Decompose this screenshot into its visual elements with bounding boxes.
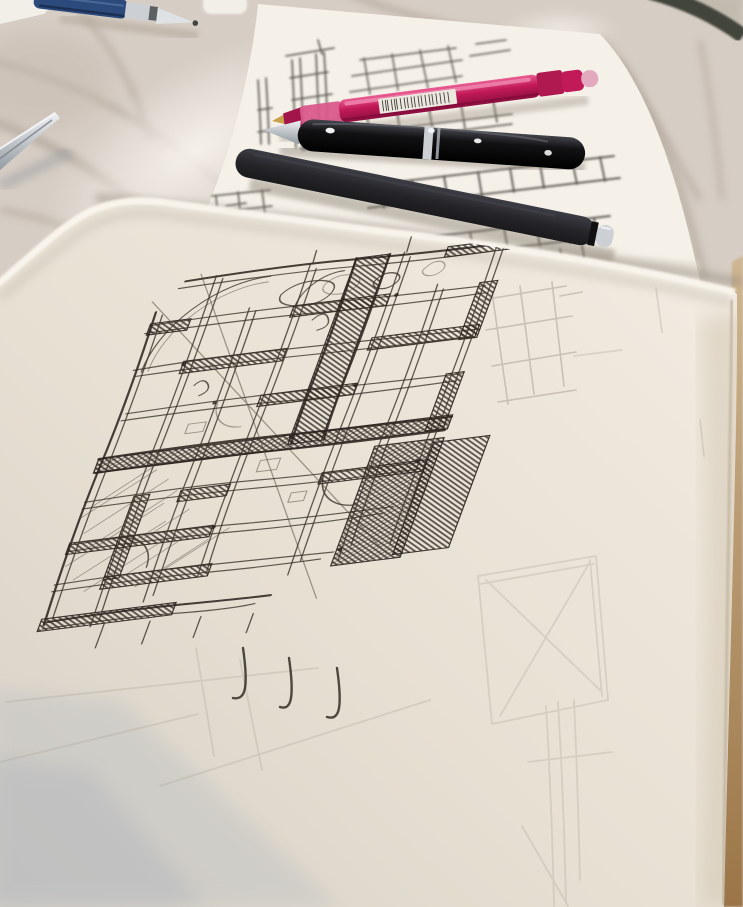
foreground-page [0, 201, 743, 907]
photo-of-sketches [0, 0, 743, 907]
scene-photo [0, 0, 743, 907]
paper-scrap-top [203, 0, 247, 14]
